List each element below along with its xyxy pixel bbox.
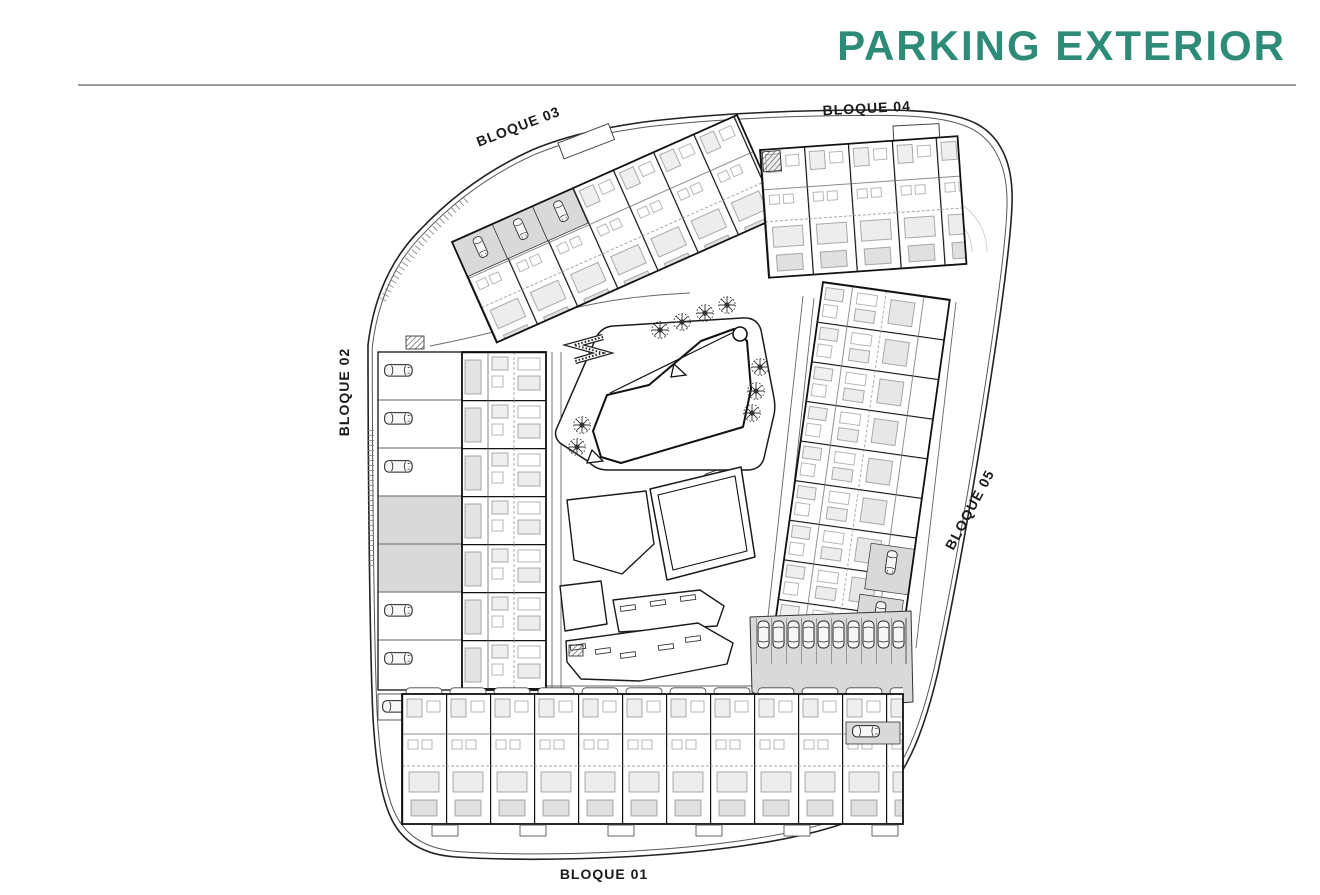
car-icon (385, 413, 413, 425)
car-icon (385, 653, 413, 665)
utility-room (762, 151, 781, 172)
utility-room (569, 645, 583, 656)
stairs-icon (574, 337, 603, 361)
utility-room (406, 336, 424, 349)
car-icon (385, 605, 413, 617)
label-bloque-02: BLOQUE 02 (336, 348, 352, 436)
building-bloque-01 (402, 687, 903, 837)
building-bloque-04 (760, 136, 966, 277)
empty-stall (379, 497, 461, 544)
empty-stall (379, 545, 461, 592)
car-icon (385, 461, 413, 473)
car-icon (853, 726, 880, 737)
site-plan: BLOQUE 01 BLOQUE 02 BLOQUE 03 BLOQUE 04 … (0, 0, 1320, 895)
pool-spa-circle (733, 327, 747, 341)
label-bloque-01: BLOQUE 01 (560, 866, 648, 882)
rear-stoops (402, 824, 903, 837)
building-bloque-02 (378, 336, 546, 720)
page: PARKING EXTERIOR (0, 0, 1320, 895)
car-icon (385, 365, 413, 377)
island (560, 581, 607, 631)
